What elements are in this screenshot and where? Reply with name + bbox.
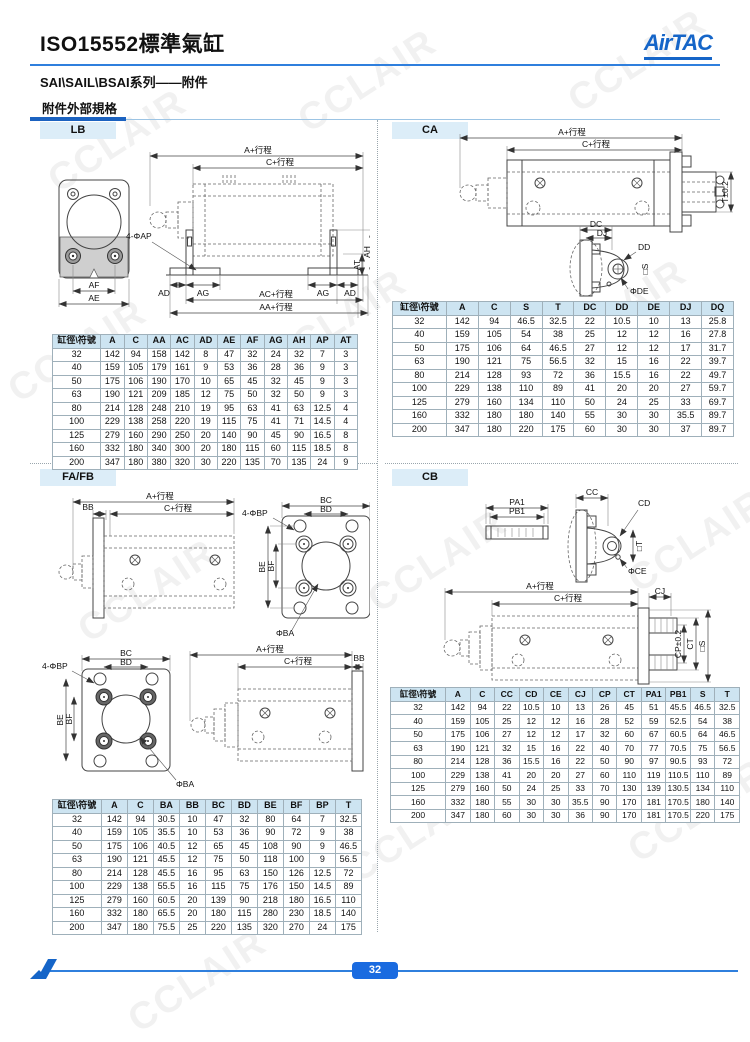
- table-cell: 175: [446, 342, 478, 356]
- table-cell: 60: [593, 769, 617, 783]
- table-cell: 89.7: [702, 410, 734, 424]
- table-cell: 16: [179, 881, 205, 895]
- table-cell: 220: [690, 809, 714, 823]
- dim-4-bp: 4-ΦBP: [242, 508, 268, 518]
- table-cell: 12: [606, 329, 638, 343]
- table-cell: 138: [127, 881, 153, 895]
- table-cell: 100: [391, 769, 446, 783]
- table-cell: 39.7: [702, 356, 734, 370]
- dim-ae: AE: [88, 293, 100, 303]
- table-row: 4015910517916195336283693: [53, 362, 358, 376]
- table-cell: 229: [446, 769, 470, 783]
- table-cell: 60.5: [666, 728, 690, 742]
- fafb-flange-view-shaded: BC BD 4-ΦBP BE BF ΦBA: [42, 648, 194, 789]
- table-cell: 30: [638, 423, 670, 437]
- table-cell: 94: [478, 315, 510, 329]
- dim-c-stroke: C+行程: [266, 157, 295, 167]
- table-cell: 49.7: [702, 369, 734, 383]
- table-cell: 71: [287, 416, 310, 430]
- table-cell: 33: [568, 782, 592, 796]
- table-cell: 12: [519, 715, 543, 729]
- table-cell: 4: [334, 416, 357, 430]
- table-cell: 16: [544, 742, 568, 756]
- table-cell: 118: [257, 854, 283, 868]
- table-cell: 27: [568, 769, 592, 783]
- table-row: 501751066446.52712121731.7: [393, 342, 734, 356]
- dim-a-stroke: A+行程: [146, 491, 174, 501]
- table-cell: 20: [179, 894, 205, 908]
- table-cell: 46.5: [542, 342, 574, 356]
- table-cell: 220: [217, 456, 240, 470]
- table-cell: 30: [544, 796, 568, 810]
- table-cell: 220: [205, 921, 231, 935]
- table-cell: 19: [194, 416, 217, 430]
- table-cell: 95: [205, 867, 231, 881]
- table-cell: 140: [715, 796, 740, 810]
- ca-drawing: A+行程 C+行程 T±0.2 DC DJ DD ΦDE □S: [390, 126, 735, 303]
- lb-drawing: AF AE A+行程 C+行程 4-ΦAP AD AG AG AD: [30, 142, 370, 337]
- table-cell: 69.7: [702, 396, 734, 410]
- table-cell: 175: [101, 840, 127, 854]
- col-header: BD: [231, 800, 257, 814]
- table-cell: 175: [101, 375, 124, 389]
- table-row: 321429415814284732243273: [53, 348, 358, 362]
- table-cell: 160: [393, 410, 447, 424]
- table-row: 2003471806030303690170181170.5220175: [391, 809, 740, 823]
- table-cell: 12: [194, 389, 217, 403]
- dim-t: T±0.2: [720, 181, 730, 203]
- dim-ba: ΦBA: [276, 628, 294, 638]
- col-header: CE: [544, 688, 568, 702]
- table-cell: 20: [179, 908, 205, 922]
- table-cell: 121: [470, 742, 494, 756]
- table-cell: 40: [391, 715, 446, 729]
- table-cell: 10: [179, 827, 205, 841]
- table-cell: 218: [257, 894, 283, 908]
- col-header: DE: [638, 302, 670, 316]
- table-cell: 40: [393, 329, 447, 343]
- table-row: 4015910535.51053369072938: [53, 827, 362, 841]
- table-cell: 125: [391, 782, 446, 796]
- table-cell: 180: [127, 921, 153, 935]
- table-cell: 320: [171, 456, 194, 470]
- table-cell: 72: [715, 755, 740, 769]
- dim-at: AT: [352, 260, 362, 270]
- table-cell: 180: [690, 796, 714, 810]
- table-cell: 72: [335, 867, 361, 881]
- table-cell: 95: [217, 402, 240, 416]
- section-badge-cb: CB: [392, 469, 468, 486]
- table-cell: 125: [53, 429, 101, 443]
- col-header: S: [510, 302, 542, 316]
- table-cell: 89: [542, 383, 574, 397]
- table-cell: 32: [53, 348, 101, 362]
- table-cell: 55: [495, 796, 519, 810]
- table-cell: 8: [334, 429, 357, 443]
- table-cell: 180: [217, 443, 240, 457]
- dim-ah: AH: [362, 246, 370, 258]
- col-header: C: [127, 800, 153, 814]
- row-divider-right: [385, 463, 738, 464]
- table-cell: 24: [519, 782, 543, 796]
- table-cell: 80: [391, 755, 446, 769]
- table-cell: 80: [257, 813, 283, 827]
- table-cell: 180: [470, 809, 494, 823]
- table-cell: 170: [617, 796, 641, 810]
- ca-side-view: A+行程 C+行程 T±0.2: [460, 127, 733, 232]
- table-cell: 12: [606, 342, 638, 356]
- table-cell: 105: [124, 362, 147, 376]
- table-cell: 28: [264, 362, 287, 376]
- table-row: 631901217556.53215162239.7: [393, 356, 734, 370]
- table-cell: 10.5: [606, 315, 638, 329]
- table-cell: 40: [53, 827, 102, 841]
- table-cell: 16.5: [311, 429, 334, 443]
- table-cell: 35.5: [670, 410, 702, 424]
- lb-side-view: A+行程 C+行程 4-ΦAP AD AG AG AD AH AT AC+行程: [126, 145, 370, 318]
- dim-c-stroke: C+行程: [164, 503, 193, 513]
- table-cell: 60: [574, 423, 606, 437]
- table-cell: 270: [283, 921, 309, 935]
- table-cell: 180: [478, 423, 510, 437]
- table-row: 32142942210.5101326455145.546.532.5: [391, 701, 740, 715]
- table-cell: 63: [287, 402, 310, 416]
- table-cell: 12: [638, 329, 670, 343]
- table-cell: 110: [690, 769, 714, 783]
- table-cell: 75: [690, 742, 714, 756]
- series-subtitle: SAI\SAIL\BSAI系列——附件: [40, 72, 208, 91]
- col-header: A: [101, 800, 127, 814]
- table-cell: 8: [194, 348, 217, 362]
- table-cell: 70: [593, 782, 617, 796]
- table-cell: 27: [670, 383, 702, 397]
- table-cell: 105: [470, 715, 494, 729]
- table-cell: 380: [147, 456, 170, 470]
- section-rule-dark: [30, 117, 126, 121]
- col-header: S: [690, 688, 714, 702]
- table-cell: 22: [574, 315, 606, 329]
- cb-side-view: A+行程 C+行程 CJ CP±0.2 CT □S: [444, 581, 711, 684]
- table-cell: 30: [194, 456, 217, 470]
- table-cell: 32.5: [542, 315, 574, 329]
- table-cell: 138: [470, 769, 494, 783]
- table-cell: 30: [519, 796, 543, 810]
- table-cell: 279: [101, 894, 127, 908]
- table-cell: 60.5: [153, 894, 179, 908]
- table-cell: 45.5: [666, 701, 690, 715]
- table-cell: 56.5: [542, 356, 574, 370]
- table-cell: 200: [393, 423, 447, 437]
- table-cell: 121: [127, 854, 153, 868]
- table-cell: 32: [391, 701, 446, 715]
- table-cell: 176: [257, 881, 283, 895]
- table-cell: 190: [101, 854, 127, 868]
- table-cell: 30: [638, 410, 670, 424]
- table-cell: 150: [283, 881, 309, 895]
- brand-logo: AirTAC: [644, 30, 712, 60]
- table-row: 80214128248210199563416312.54: [53, 402, 358, 416]
- table-cell: 170: [171, 375, 194, 389]
- table-cell: 110.5: [666, 769, 690, 783]
- table-cell: 30: [606, 423, 638, 437]
- table-cell: 13: [670, 315, 702, 329]
- table-cell: 340: [147, 443, 170, 457]
- table-cell: 97: [641, 755, 665, 769]
- table-cell: 46.5: [335, 840, 361, 854]
- table-cell: 41: [495, 769, 519, 783]
- table-cell: 20: [544, 769, 568, 783]
- table-cell: 9: [311, 362, 334, 376]
- table-cell: 36: [574, 369, 606, 383]
- col-header: 缸徑\符號: [393, 302, 447, 316]
- section-heading: 附件外部規格: [42, 98, 117, 117]
- table-cell: 142: [101, 813, 127, 827]
- table-cell: 24: [311, 456, 334, 470]
- table-cell: 16: [670, 329, 702, 343]
- dim-t: □T: [634, 541, 644, 551]
- table-cell: 36: [231, 827, 257, 841]
- table-cell: 55: [574, 410, 606, 424]
- table-cell: 30: [519, 809, 543, 823]
- table-cell: 110: [715, 782, 740, 796]
- col-header: DC: [574, 302, 606, 316]
- table-cell: 94: [127, 813, 153, 827]
- col-header: A: [446, 302, 478, 316]
- dim-bf: BF: [64, 714, 74, 725]
- table-cell: 14.5: [309, 881, 335, 895]
- col-header: AH: [287, 335, 310, 349]
- table-cell: 70: [264, 456, 287, 470]
- table-cell: 115: [231, 908, 257, 922]
- table-cell: 32: [264, 375, 287, 389]
- table-cell: 64: [690, 728, 714, 742]
- table-cell: 40: [593, 742, 617, 756]
- table-cell: 94: [470, 701, 494, 715]
- table-cell: 32: [53, 813, 102, 827]
- table-cell: 220: [510, 423, 542, 437]
- table-cell: 119: [641, 769, 665, 783]
- table-cell: 135: [231, 921, 257, 935]
- table-cell: 24: [264, 348, 287, 362]
- table-cell: 41: [264, 416, 287, 430]
- table-cell: 16: [638, 369, 670, 383]
- table-cell: 105: [478, 329, 510, 343]
- col-header: C: [478, 302, 510, 316]
- table-cell: 180: [478, 410, 510, 424]
- table-cell: 32.5: [335, 813, 361, 827]
- col-header: AF: [241, 335, 264, 349]
- table-row: 10022913855.5161157517615014.589: [53, 881, 362, 895]
- table-cell: 258: [147, 416, 170, 430]
- dim-ad: AD: [344, 288, 356, 298]
- table-cell: 25: [179, 921, 205, 935]
- table-cell: 106: [478, 342, 510, 356]
- table-cell: 3: [334, 389, 357, 403]
- fafb-side-view-right: A+行程 C+行程 BB: [190, 644, 365, 771]
- table-cell: 16: [638, 356, 670, 370]
- table-row: 802141283615.5162250909790.59372: [391, 755, 740, 769]
- table-cell: 200: [53, 921, 102, 935]
- table-cell: 159: [101, 827, 127, 841]
- table-cell: 128: [124, 402, 147, 416]
- table-cell: 17: [670, 342, 702, 356]
- page-title: ISO15552標準氣缸: [40, 28, 225, 58]
- cb-pin-view: PA1 PB1: [486, 497, 548, 539]
- col-header: AT: [334, 335, 357, 349]
- col-header: AD: [194, 335, 217, 349]
- col-header: 缸徑\符號: [53, 335, 101, 349]
- lb-end-view: AF AE: [59, 180, 129, 307]
- table-cell: 175: [335, 921, 361, 935]
- dim-a-stroke: A+行程: [244, 145, 272, 155]
- table-row: 1252791602902502014090459016.58: [53, 429, 358, 443]
- table-cell: 28: [593, 715, 617, 729]
- table-cell: 115: [287, 443, 310, 457]
- table-cell: 9: [311, 375, 334, 389]
- table-cell: 93: [510, 369, 542, 383]
- table-cell: 30.5: [153, 813, 179, 827]
- table-cell: 16.5: [309, 894, 335, 908]
- table-cell: 30: [544, 809, 568, 823]
- col-header: 缸徑\符號: [53, 800, 102, 814]
- page-number: 32: [352, 962, 398, 979]
- table-cell: 90: [287, 429, 310, 443]
- table-cell: 138: [478, 383, 510, 397]
- table-cell: 63: [391, 742, 446, 756]
- dim-ct: CT: [685, 638, 695, 649]
- dim-cd: CD: [638, 498, 650, 508]
- table-cell: 138: [124, 416, 147, 430]
- dim-cp: CP±0.2: [673, 630, 683, 659]
- table-cell: 10: [544, 701, 568, 715]
- table-cell: 64: [283, 813, 309, 827]
- table-row: 12527916060.5201399021818016.5110: [53, 894, 362, 908]
- table-cell: 25: [544, 782, 568, 796]
- table-cell: 32: [287, 348, 310, 362]
- table-row: 8021412893723615.5162249.7: [393, 369, 734, 383]
- table-cell: 180: [510, 410, 542, 424]
- col-header: C: [470, 688, 494, 702]
- dim-af: AF: [89, 280, 100, 290]
- table-cell: 25: [574, 329, 606, 343]
- table-cell: 9: [311, 389, 334, 403]
- table-cell: 32: [241, 348, 264, 362]
- table-cell: 90: [593, 809, 617, 823]
- table-cell: 248: [147, 402, 170, 416]
- table-cell: 75: [205, 854, 231, 868]
- table-cell: 90: [617, 755, 641, 769]
- table-cell: 140: [335, 908, 361, 922]
- table-cell: 50: [495, 782, 519, 796]
- col-header: CD: [519, 688, 543, 702]
- table-cell: 24: [606, 396, 638, 410]
- table-row: 16033218065.52018011528023018.5140: [53, 908, 362, 922]
- table-cell: 24: [309, 921, 335, 935]
- table-cell: 4: [334, 402, 357, 416]
- table-cell: 38: [715, 715, 740, 729]
- table-cell: 160: [470, 782, 494, 796]
- table-cell: 38: [335, 827, 361, 841]
- table-cell: 110: [510, 383, 542, 397]
- table-cell: 46.5: [510, 315, 542, 329]
- table-cell: 17: [568, 728, 592, 742]
- table-cell: 27: [574, 342, 606, 356]
- table-cell: 100: [53, 881, 102, 895]
- table-cell: 19: [194, 402, 217, 416]
- cb-drawing: PA1 PB1 CC CD ΦCE □T A+行程 C+行程 CJ: [390, 488, 738, 691]
- table-cell: 250: [171, 429, 194, 443]
- table-cell: 25.8: [702, 315, 734, 329]
- table-cell: 36: [241, 362, 264, 376]
- table-cell: 190: [446, 742, 470, 756]
- table-cell: 47: [205, 813, 231, 827]
- table-cell: 80: [53, 402, 101, 416]
- table-cell: 10.5: [519, 701, 543, 715]
- table-cell: 63: [241, 402, 264, 416]
- col-header: AG: [264, 335, 287, 349]
- table-cell: 130: [617, 782, 641, 796]
- table-cell: 100: [283, 854, 309, 868]
- table-cell: 40: [53, 362, 101, 376]
- table-cell: 175: [542, 423, 574, 437]
- table-cell: 175: [446, 728, 470, 742]
- table-cell: 20: [606, 383, 638, 397]
- table-cell: 12: [638, 342, 670, 356]
- table-cell: 332: [101, 908, 127, 922]
- dim-a-stroke: A+行程: [558, 127, 586, 137]
- table-cell: 12: [544, 728, 568, 742]
- ca-table: 缸徑\符號ACSTDCDDDEDJDQ321429446.532.52210.5…: [392, 301, 734, 437]
- table-row: 6319012145.5127550118100956.5: [53, 854, 362, 868]
- table-cell: 63: [53, 854, 102, 868]
- col-header: CJ: [568, 688, 592, 702]
- table-cell: 347: [101, 456, 124, 470]
- table-cell: 200: [53, 456, 101, 470]
- table-cell: 32: [231, 813, 257, 827]
- watermark: CCLAIR: [121, 921, 275, 1042]
- table-cell: 15: [519, 742, 543, 756]
- dim-4-ap: 4-ΦAP: [126, 231, 152, 241]
- dim-c-stroke: C+行程: [582, 139, 611, 149]
- table-cell: 105: [127, 827, 153, 841]
- table-cell: 37: [670, 423, 702, 437]
- table-cell: 229: [101, 416, 124, 430]
- table-cell: 134: [510, 396, 542, 410]
- table-cell: 31.7: [702, 342, 734, 356]
- table-cell: 90: [257, 827, 283, 841]
- dim-bd: BD: [320, 504, 332, 514]
- table-cell: 51: [641, 701, 665, 715]
- col-header: PB1: [666, 688, 690, 702]
- table-cell: 35.5: [568, 796, 592, 810]
- fafb-flange-view: BC BD 4-ΦBP BE BF ΦBA: [242, 495, 370, 638]
- col-header: BC: [205, 800, 231, 814]
- table-cell: 160: [53, 908, 102, 922]
- table-cell: 56.5: [715, 742, 740, 756]
- dim-s: □S: [697, 640, 707, 651]
- table-cell: 32.5: [715, 701, 740, 715]
- table-cell: 110: [335, 894, 361, 908]
- table-cell: 70: [617, 742, 641, 756]
- table-cell: 332: [446, 796, 470, 810]
- table-cell: 121: [478, 356, 510, 370]
- fafb-table: 缸徑\符號ACBABBBCBDBEBFBPT321429430.51047328…: [52, 799, 362, 935]
- col-header: T: [335, 800, 361, 814]
- table-cell: 20: [194, 443, 217, 457]
- table-cell: 214: [446, 755, 470, 769]
- table-cell: 10: [179, 813, 205, 827]
- table-cell: 33: [670, 396, 702, 410]
